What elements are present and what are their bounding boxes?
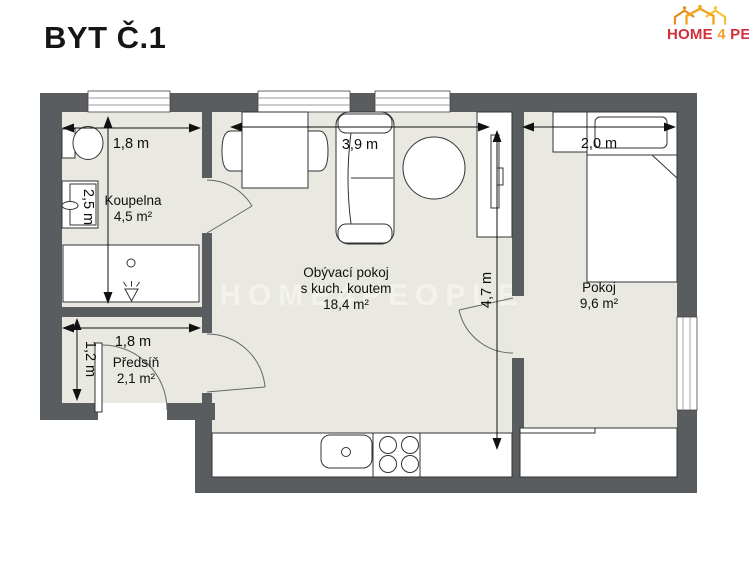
window-pokoj-east: [677, 317, 697, 410]
window-living-2: [375, 91, 450, 112]
wall-living-pokoj-upper: [512, 112, 524, 296]
floor-plan: HOME4PEOPLE: [0, 0, 749, 562]
dim-pokoj-width: 2,0 m: [581, 136, 617, 152]
label-pokoj-area: 9,6 m²: [580, 296, 619, 311]
kitchen: [212, 433, 512, 477]
wall-bath-hall: [62, 307, 212, 317]
bathtub: [63, 245, 199, 302]
label-obyvaci: Obývací pokoj: [303, 265, 389, 280]
dim-obyvaci-width: 3,9 m: [342, 137, 378, 153]
wall-bath-living-mid: [202, 233, 212, 333]
label-obyvaci-area: 18,4 m²: [323, 297, 369, 312]
chair-right: [306, 131, 328, 171]
wall-east: [677, 93, 697, 493]
dim-koupelna-width: 1,8 m: [113, 136, 149, 152]
entrance-opening: [98, 403, 167, 420]
label-koupelna: Koupelna: [104, 193, 162, 208]
round-table: [403, 137, 465, 199]
wardrobe: [520, 428, 677, 477]
window-bathroom: [88, 91, 170, 112]
label-obyvaci-sub: s kuch. koutem: [301, 281, 392, 296]
wall-west: [40, 93, 62, 420]
chair-left: [222, 131, 244, 171]
label-predsin-area: 2,1 m²: [117, 371, 156, 386]
wall-bath-living-upper: [202, 112, 212, 178]
toilet: [62, 127, 103, 160]
dim-predsin-width: 1,8 m: [115, 334, 151, 350]
label-predsin: Předsíň: [113, 355, 160, 370]
wall-south: [195, 477, 697, 493]
kitchen-counter: [212, 433, 512, 477]
window-living-1: [258, 91, 350, 112]
dining-table: [242, 112, 308, 188]
label-koupelna-area: 4,5 m²: [114, 209, 153, 224]
tall-cabinet: [477, 112, 512, 237]
sofa: [336, 112, 394, 244]
label-pokoj: Pokoj: [582, 280, 616, 295]
dim-obyvaci-depth: 4,7 m: [479, 272, 495, 308]
wall-hall-living-stub: [202, 393, 212, 420]
dim-predsin-depth: 1,2 m: [82, 341, 98, 377]
dim-koupelna-depth: 2,5 m: [80, 189, 96, 225]
